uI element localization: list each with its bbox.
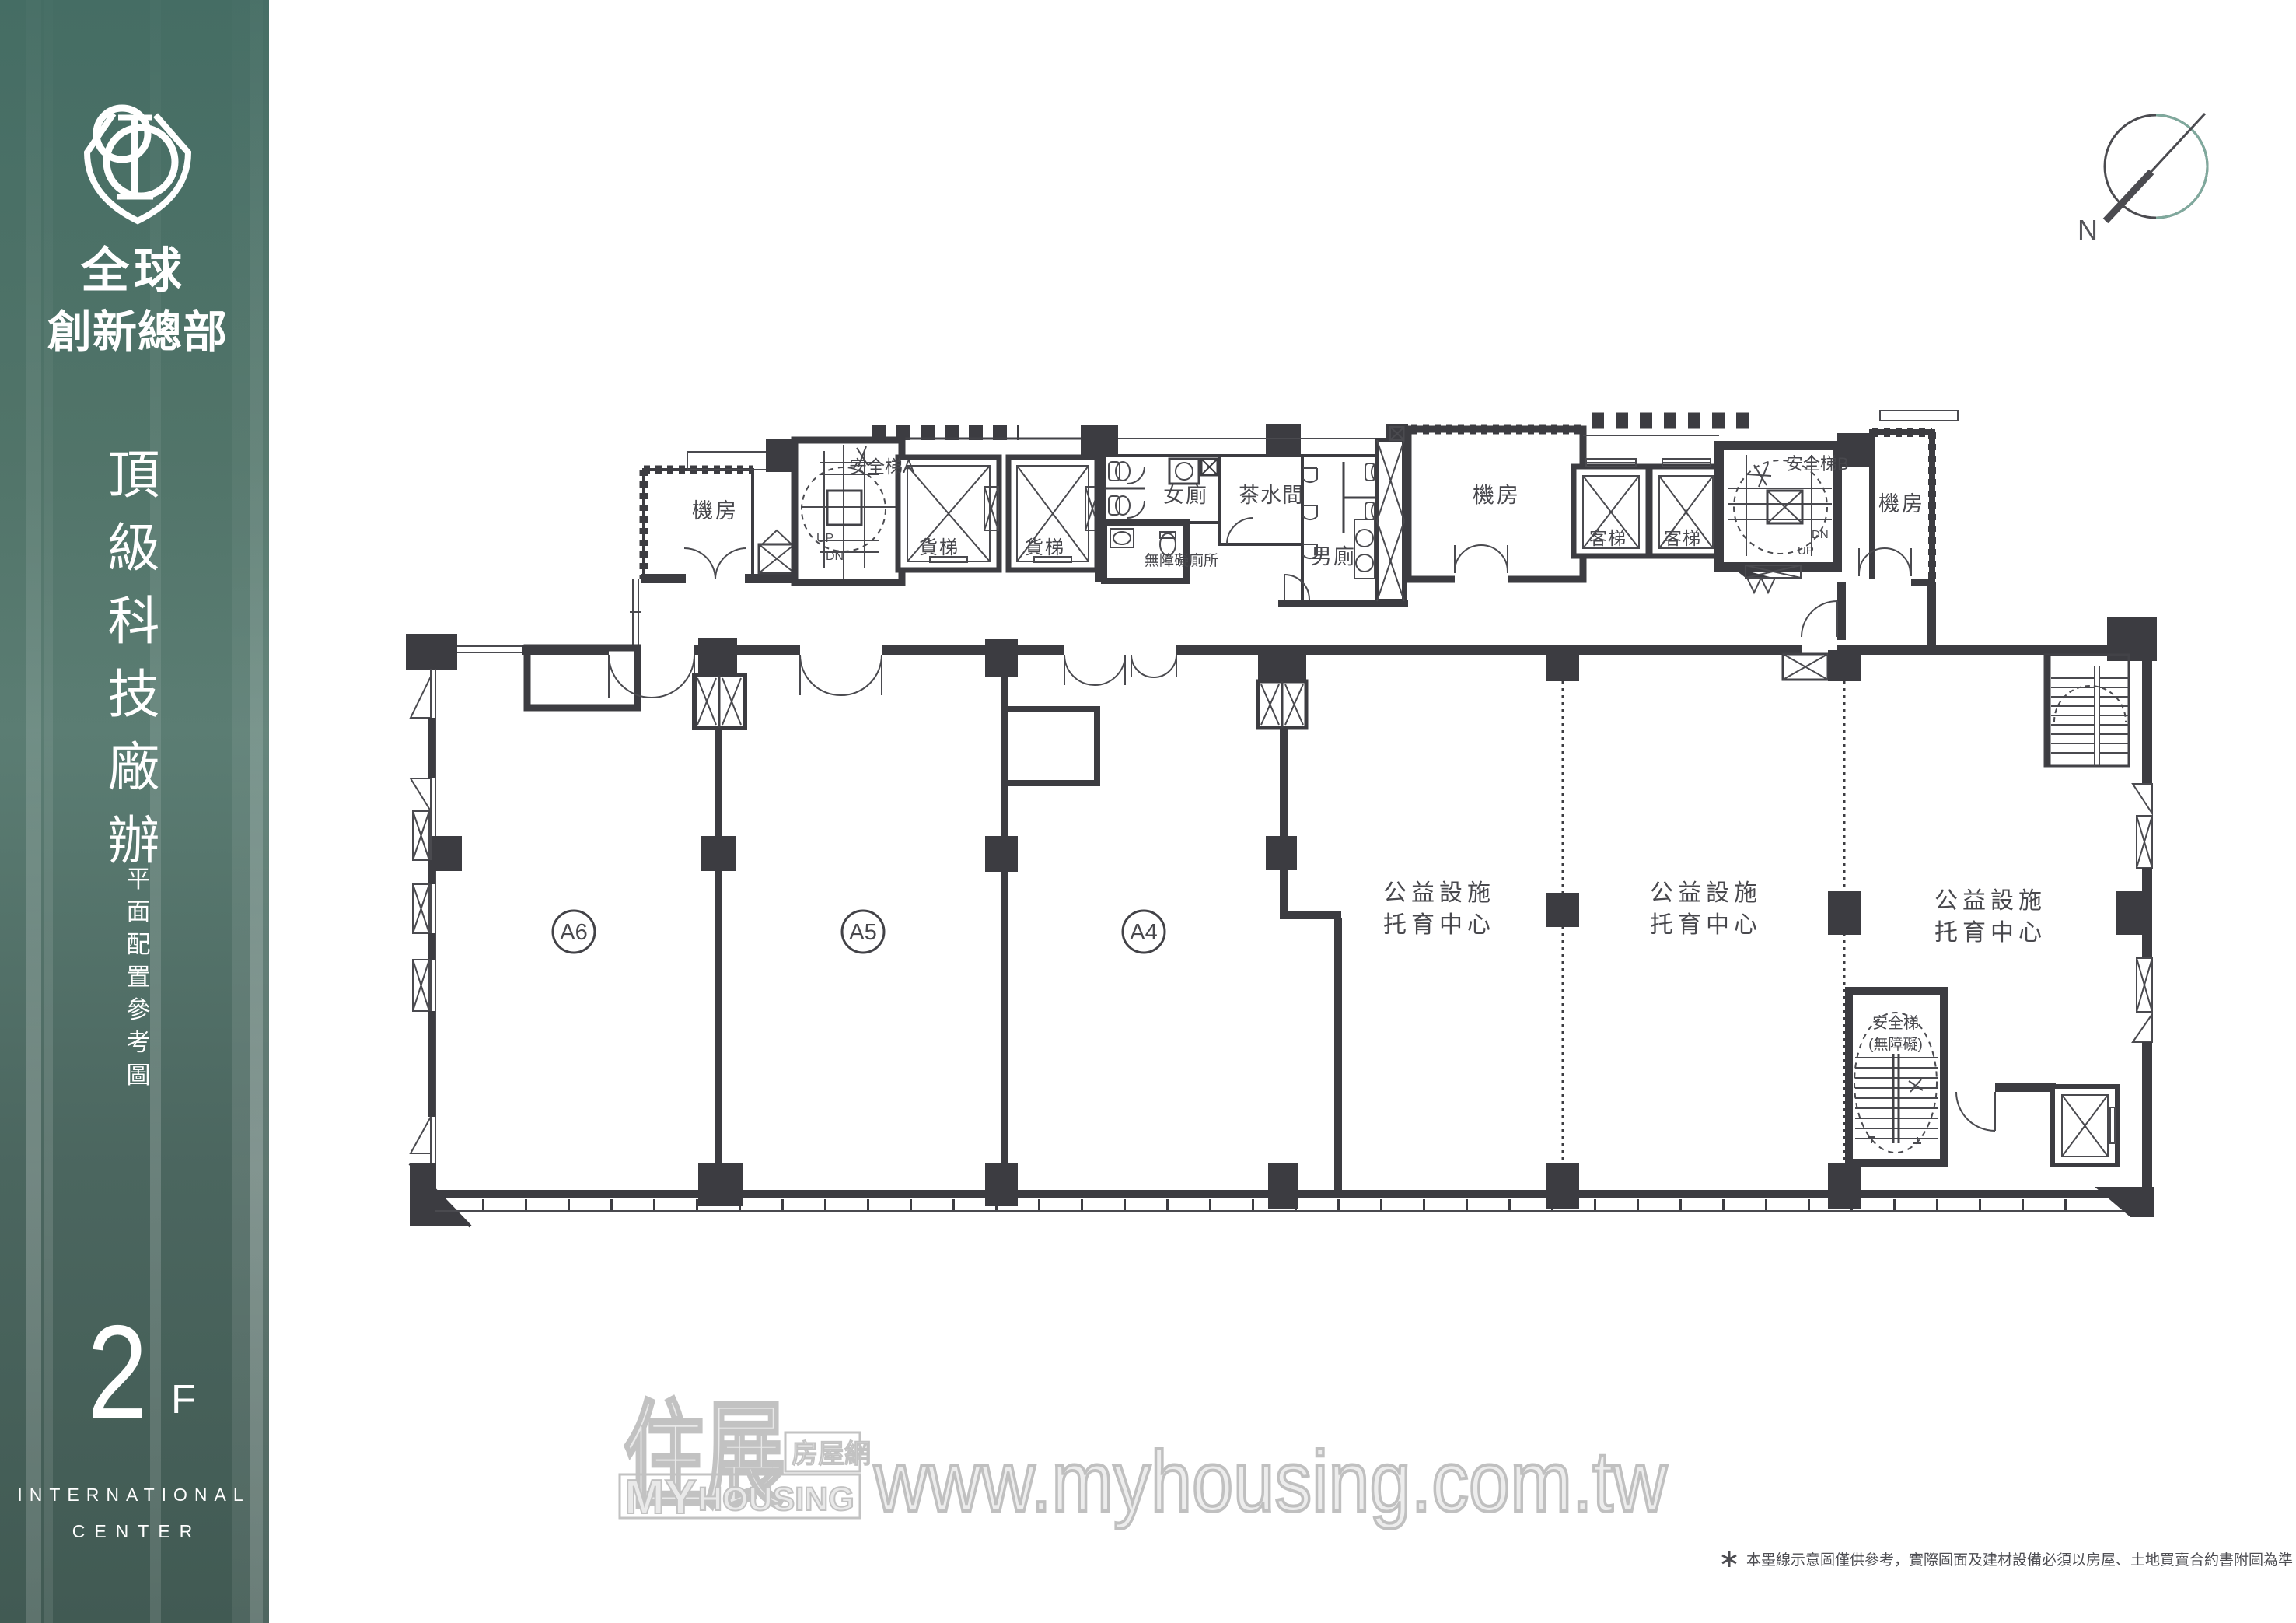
svg-text:面: 面 [127,898,151,925]
svg-text:貨梯: 貨梯 [1025,537,1065,558]
svg-text:UP: UP [1798,544,1814,558]
svg-text:無障礙廁所: 無障礙廁所 [1145,551,1218,569]
svg-text:(無障礙): (無障礙) [1868,1036,1923,1053]
svg-text:男廁: 男廁 [1311,545,1356,568]
svg-text:機房: 機房 [1473,483,1521,507]
svg-text:參: 參 [127,996,151,1023]
svg-text:托育中心: 托育中心 [1383,912,1495,938]
svg-text:A5: A5 [849,920,876,945]
svg-text:UP: UP [816,532,833,545]
svg-text:貨梯: 貨梯 [919,537,959,558]
svg-text:MY: MY [624,1471,697,1524]
svg-text:2: 2 [87,1298,148,1447]
svg-text:全球: 全球 [80,244,187,298]
svg-text:托育中心: 托育中心 [1934,920,2046,946]
svg-text:INTERNATIONAL: INTERNATIONAL [17,1485,250,1505]
svg-text:置: 置 [127,964,151,991]
svg-text:A6: A6 [560,920,587,945]
svg-text:廠: 廠 [108,739,160,797]
svg-text:房屋網: 房屋網 [792,1439,871,1469]
svg-text:平: 平 [127,866,151,893]
svg-text:考: 考 [127,1029,151,1056]
svg-text:茶水間: 茶水間 [1239,484,1304,507]
svg-text:科: 科 [108,593,160,651]
svg-text:配: 配 [127,931,151,958]
svg-text:級: 級 [108,519,160,578]
svg-text:F: F [171,1377,196,1422]
svg-text:www.myhousing.com.tw: www.myhousing.com.tw [873,1434,1667,1530]
svg-text:DN: DN [1812,528,1829,541]
svg-text:創新總部: 創新總部 [47,307,228,357]
svg-text:N: N [2078,214,2098,246]
svg-text:客梯: 客梯 [1664,528,1701,548]
svg-text:本墨線示意圖僅供參考，實際圖面及建材設備必須以房屋、土地買賣: 本墨線示意圖僅供參考，實際圖面及建材設備必須以房屋、土地買賣合約書附圖為準 [1746,1551,2293,1569]
svg-text:DN: DN [826,550,844,563]
svg-text:A4: A4 [1130,920,1157,945]
svg-text:托育中心: 托育中心 [1650,912,1762,938]
svg-text:頂: 頂 [108,446,160,505]
svg-text:CENTER: CENTER [72,1521,202,1541]
svg-text:圖: 圖 [127,1062,151,1089]
svg-text:客梯: 客梯 [1589,528,1627,548]
svg-text:安全梯A: 安全梯A [849,456,915,477]
svg-text:公益設施: 公益設施 [1934,888,2046,914]
svg-text:安全梯B: 安全梯B [1786,454,1849,474]
svg-text:技: 技 [108,666,160,724]
svg-text:機房: 機房 [692,499,739,523]
svg-text:辦: 辦 [108,812,160,870]
svg-text:公益設施: 公益設施 [1650,880,1762,906]
svg-text:女廁: 女廁 [1163,484,1208,507]
svg-text:公益設施: 公益設施 [1383,880,1495,906]
svg-text:HOUSING: HOUSING [698,1481,854,1518]
svg-text:安全梯: 安全梯 [1872,1014,1919,1032]
svg-text:機房: 機房 [1878,492,1925,516]
